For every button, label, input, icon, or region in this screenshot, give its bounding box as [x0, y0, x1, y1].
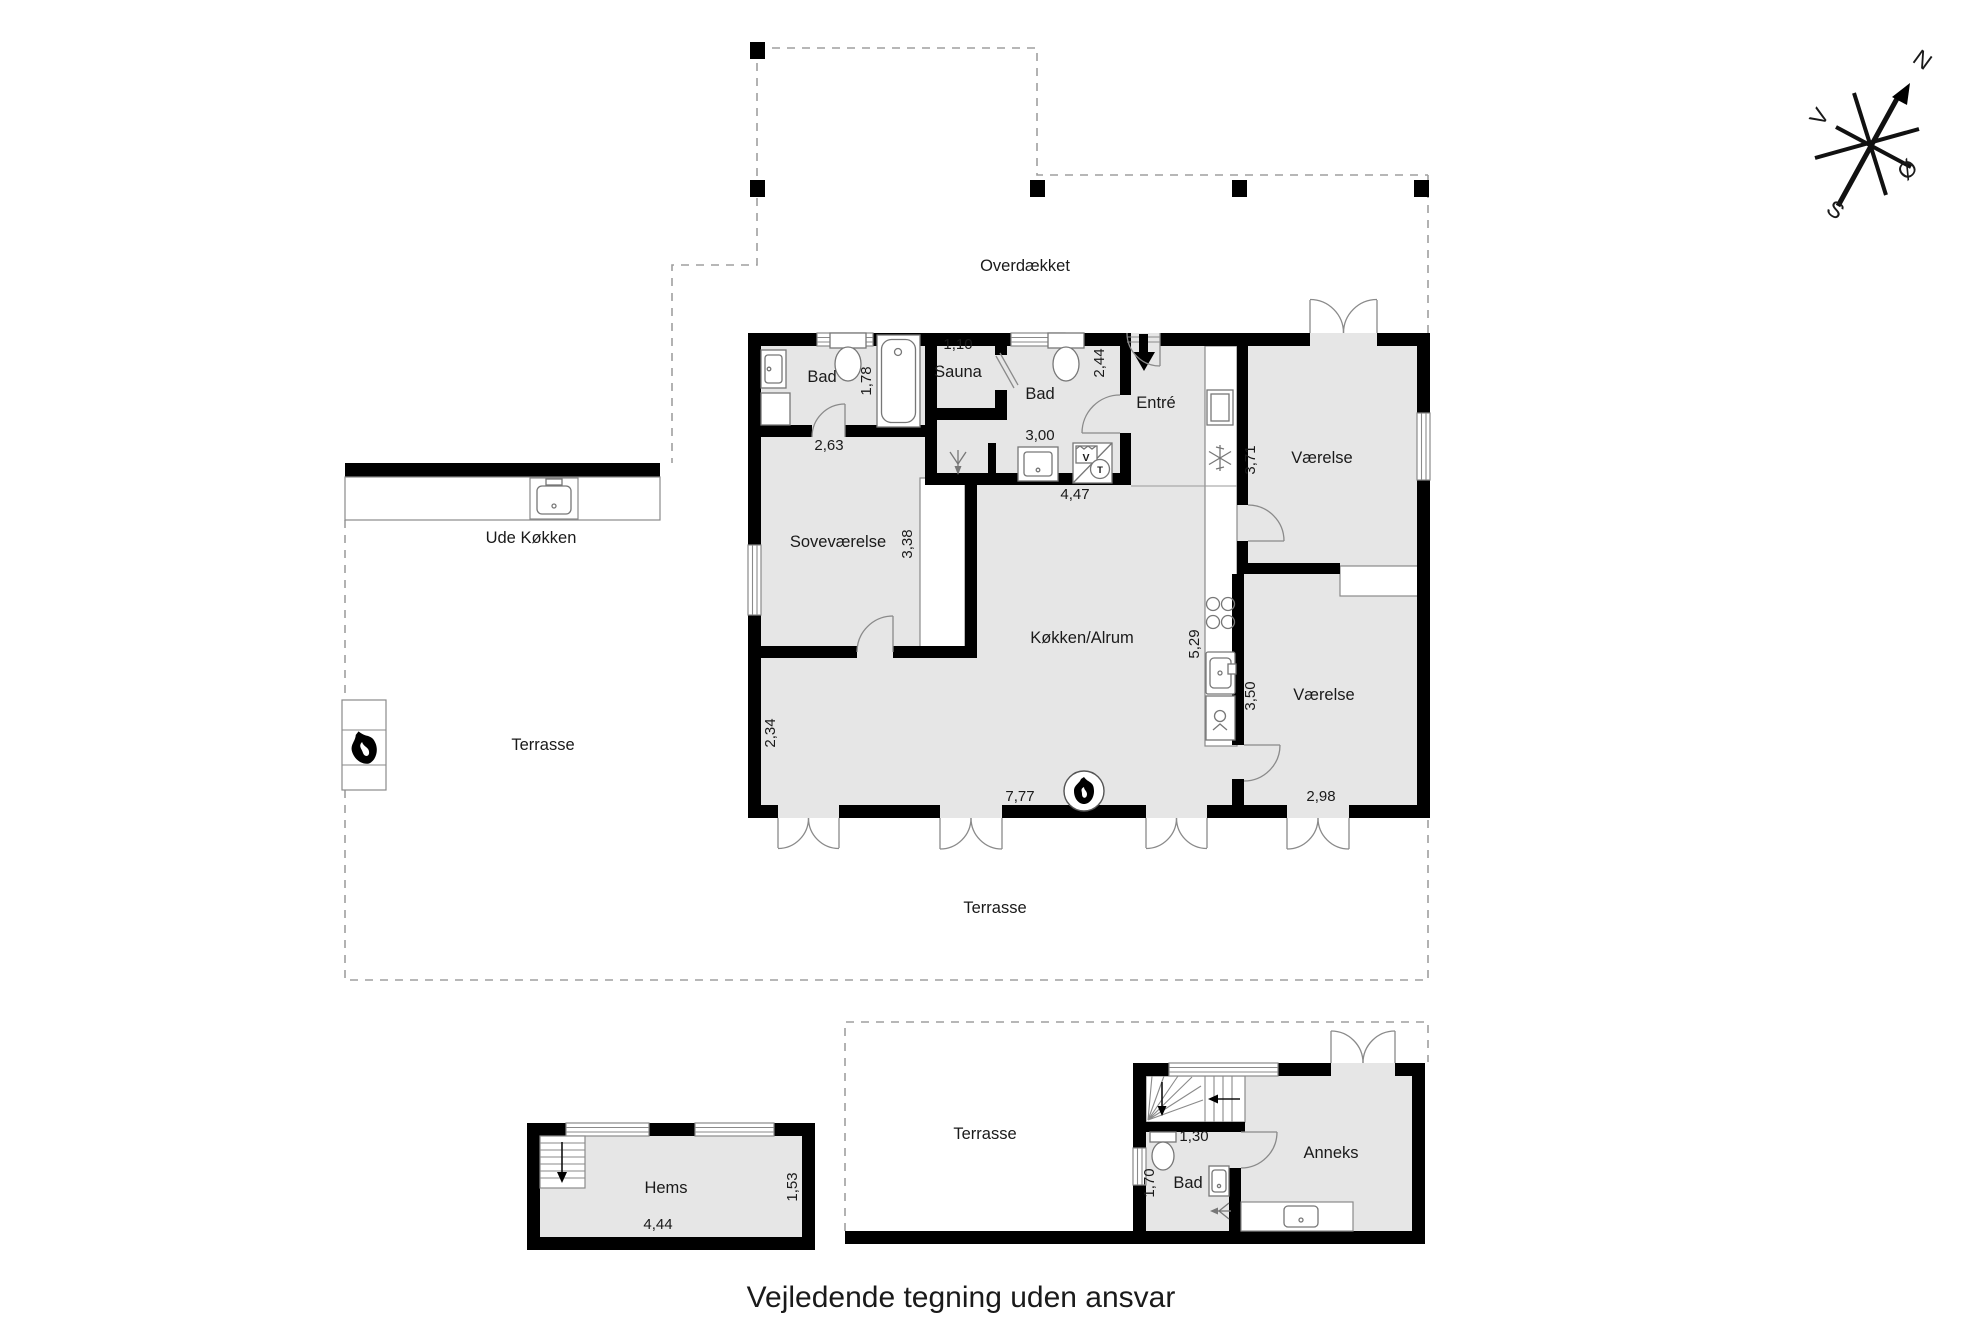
drawing-caption: Vejledende tegning uden ansvar: [747, 1281, 1176, 1314]
compass-n: N: [1908, 44, 1937, 75]
french-doors-south: [778, 818, 1349, 849]
anneks-counter: [1241, 1202, 1353, 1231]
french-door-north: [1310, 300, 1377, 334]
post: [1030, 180, 1045, 197]
dim-hems-depth: 1,53: [784, 1172, 801, 1201]
anneks-plan: Terrasse: [845, 1022, 1428, 1244]
room-label-anneks: Anneks: [1303, 1144, 1358, 1162]
compass-s: S: [1822, 195, 1850, 225]
fridge-icon: [1207, 390, 1233, 425]
post: [1414, 180, 1429, 197]
dim-bad-nw-width: 2,63: [814, 437, 843, 454]
dim-sovevaerelse-depth: 3,38: [899, 529, 916, 558]
main-house: V T: [748, 300, 1430, 850]
wardrobe: [920, 478, 965, 652]
dishwasher-icon: [1206, 696, 1235, 740]
sink-icon: [1209, 1166, 1229, 1196]
post: [750, 180, 765, 197]
dim-sauna-width: 1,10: [943, 336, 972, 353]
outdoor-sink-icon: [530, 478, 578, 519]
dim-entre-depth: 2,44: [1091, 348, 1108, 377]
stairs-icon: [540, 1136, 585, 1188]
grill-icon: [342, 700, 386, 790]
bath-counter: [761, 393, 790, 425]
dim-bad-n-width: 3,00: [1025, 427, 1054, 444]
dim-koekken-depth: 5,29: [1186, 629, 1203, 658]
dryer-letter: T: [1097, 465, 1103, 476]
floorplan-drawing: N S V Ø: [0, 0, 1984, 1323]
outdoor-kitchen: [345, 463, 660, 520]
room-label-bad-nw: Bad: [807, 368, 836, 386]
dim-anneks-bad-depth: 1,70: [1141, 1168, 1158, 1197]
winder-stairs-icon: [1146, 1076, 1245, 1122]
room-label-anneks-bad: Bad: [1173, 1174, 1202, 1192]
label-terrasse-west: Terrasse: [511, 736, 574, 754]
closet: [1340, 566, 1418, 596]
kitchen-sink-icon: [1206, 652, 1236, 694]
washer-dryer-icon: V T: [1073, 443, 1112, 483]
label-ude-koekken: Ude Køkken: [486, 529, 577, 547]
dim-bad-nw-depth: 1,78: [858, 366, 875, 395]
room-label-vaerelse-se: Værelse: [1293, 686, 1354, 704]
hems-plan: Hems 4,44 1,53: [527, 1123, 815, 1250]
post: [750, 42, 765, 59]
room-label-koekken-alrum: Køkken/Alrum: [1030, 629, 1134, 647]
room-label-sauna: Sauna: [934, 363, 983, 381]
french-door-anneks: [1331, 1031, 1395, 1063]
dim-hall-width: 4,47: [1060, 486, 1089, 503]
dim-koekken-width: 7,77: [1005, 788, 1034, 805]
sink-icon: [1018, 447, 1058, 481]
room-label-bad-n: Bad: [1025, 385, 1054, 403]
room-label-vaerelse-ne: Værelse: [1291, 449, 1352, 467]
bathtub-icon: [877, 335, 920, 427]
label-overdaekket: Overdækket: [980, 257, 1070, 275]
post: [1232, 180, 1247, 197]
dim-hems-width: 4,44: [643, 1216, 672, 1233]
dim-stue-depth: 2,34: [762, 718, 779, 747]
dim-vaerelse-se-depth: 3,50: [1242, 681, 1259, 710]
dim-vaerelse-ne-depth: 3,71: [1242, 445, 1259, 474]
label-terrasse-south: Terrasse: [963, 899, 1026, 917]
toilet-icon: [1150, 1132, 1176, 1170]
dim-anneks-bad-width: 1,30: [1179, 1128, 1208, 1145]
label-terrasse-anneks: Terrasse: [953, 1125, 1016, 1143]
washer-letter: V: [1082, 452, 1089, 464]
room-label-hems: Hems: [644, 1179, 687, 1197]
compass-rose: N S V Ø: [1804, 44, 1937, 224]
fireplace-icon: [1064, 771, 1104, 811]
floorplan-page: N S V Ø: [0, 0, 1984, 1323]
compass-v: V: [1804, 103, 1835, 130]
sink-icon: [761, 350, 786, 388]
room-label-entre: Entré: [1136, 394, 1175, 412]
dim-vaerelse-se-width: 2,98: [1306, 788, 1335, 805]
room-label-sovevaerelse: Soveværelse: [790, 533, 886, 551]
